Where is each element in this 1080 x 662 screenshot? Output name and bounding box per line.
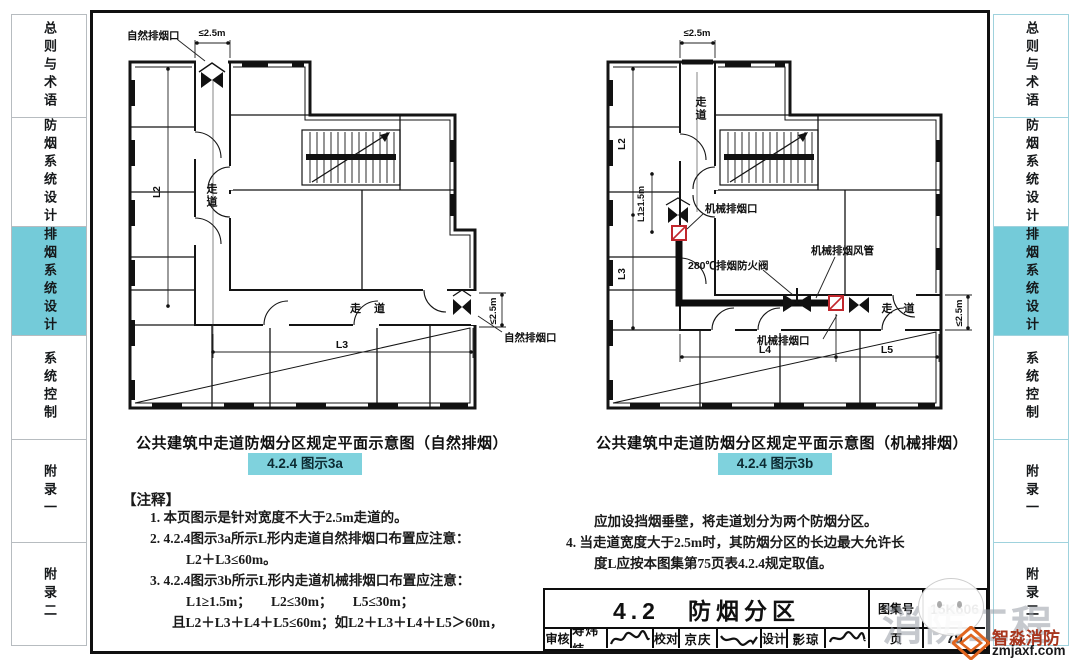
dim-l2-label: L2 bbox=[152, 186, 163, 198]
dim-top-label: ≤2.5m bbox=[199, 28, 226, 39]
mechanical-vent-top-label: 机械排烟口 bbox=[705, 202, 758, 215]
checker-name: 京庆 bbox=[678, 627, 716, 648]
tab-label: 附录二 bbox=[42, 567, 56, 621]
sidebar-left-tab-appendix-1[interactable]: 附录一 bbox=[11, 439, 87, 543]
sidebar-right-tab-smoke-protection-design[interactable]: 防烟系统设计 bbox=[993, 117, 1069, 227]
tab-label: 排烟系统设计 bbox=[1024, 227, 1038, 335]
tab-label: 防烟系统设计 bbox=[1024, 118, 1038, 226]
corridor-label-vertical-a: 走道 bbox=[203, 183, 219, 209]
caption-diagram-b: 公共建筑中走道防烟分区规定平面示意图（机械排烟） bbox=[592, 432, 972, 453]
dim-l1-label: L1≥1.5m bbox=[636, 186, 646, 222]
dim-right-label: ≤2.5m bbox=[954, 300, 965, 327]
tab-label: 附录一 bbox=[1024, 464, 1038, 518]
dim-right-label: ≤2.5m bbox=[488, 298, 499, 325]
designer-signature bbox=[824, 627, 868, 648]
doors bbox=[192, 58, 479, 328]
dim-l5-label: L5 bbox=[881, 344, 893, 356]
fan-symbol-corridor bbox=[849, 297, 869, 313]
checker-signature bbox=[716, 627, 760, 648]
designer-name: 影琼 bbox=[786, 627, 824, 648]
sidebar-left-tab-general-terms[interactable]: 总则与术语 bbox=[11, 14, 87, 118]
tab-label: 附录一 bbox=[42, 464, 56, 518]
figure-badge-3a: 4.2.4 图示3a bbox=[248, 453, 362, 475]
section-title: 4.2 防烟分区 bbox=[545, 590, 868, 627]
note-line: 度L应按本图集第75页表4.2.4规定取值。 bbox=[594, 553, 976, 574]
figure-badge-3b: 4.2.4 图示3b bbox=[718, 453, 832, 475]
dim-l3-label: L3 bbox=[617, 268, 628, 280]
signature-scribble bbox=[609, 630, 651, 648]
tab-label: 总则与术语 bbox=[42, 21, 56, 111]
sidebar-right: 总则与术语 防烟系统设计 排烟系统设计 系统控制 附录一 附录二 bbox=[993, 14, 1069, 646]
sidebar-left-tab-smoke-protection-design[interactable]: 防烟系统设计 bbox=[11, 117, 87, 227]
note-line: 3. 4.2.4图示3b所示L形内走道机械排烟口布置应注意： bbox=[150, 570, 544, 591]
staircase bbox=[302, 130, 400, 185]
reviewer-signature bbox=[606, 627, 652, 648]
reviewer-name: 寿炜炜 bbox=[570, 627, 606, 648]
sidebar-right-tab-smoke-exhaust-design[interactable]: 排烟系统设计 bbox=[993, 226, 1069, 336]
sidebar-left-tab-smoke-exhaust-design[interactable]: 排烟系统设计 bbox=[11, 226, 87, 336]
mechanical-vent-top bbox=[672, 226, 686, 240]
walls bbox=[130, 62, 475, 408]
floor-plan-mechanical-exhaust: ≤2.5m L2 L3 L1≥1.5m L4 L5 ≤2.5m 机械排烟口 28… bbox=[595, 22, 980, 427]
natural-vent-symbol-top bbox=[199, 63, 225, 88]
note-line: L2＋L3≤60m。 bbox=[186, 549, 544, 570]
note-line: 2. 4.2.4图示3a所示L形内走道自然排烟口布置应注意： bbox=[150, 528, 544, 549]
note-line: 且L2＋L3＋L4＋L5≤60m；如L2＋L3＋L4＋L5＞60m， bbox=[172, 612, 544, 633]
sidebar-right-tab-system-control[interactable]: 系统控制 bbox=[993, 335, 1069, 439]
mechanical-vent-mid-label: 机械排烟口 bbox=[757, 334, 810, 347]
fire-damper-valve bbox=[783, 288, 811, 312]
signature-scribble bbox=[719, 630, 759, 648]
fan-symbol-upper bbox=[666, 198, 690, 223]
natural-vent-top-label: 自然排烟口 bbox=[127, 29, 180, 42]
tab-label: 防烟系统设计 bbox=[42, 118, 56, 226]
walls bbox=[608, 62, 941, 408]
room-dividers bbox=[130, 115, 455, 408]
checker-label: 校对 bbox=[652, 627, 678, 648]
sidebar-left: 总则与术语 防烟系统设计 排烟系统设计 系统控制 附录一 附录二 bbox=[11, 14, 87, 646]
note-line: 应加设挡烟垂壁，将走道划分为两个防烟分区。 bbox=[594, 511, 976, 532]
note-line: L1≥1.5m； L2≤30m； L5≤30m； bbox=[186, 591, 544, 612]
sidebar-left-tab-system-control[interactable]: 系统控制 bbox=[11, 335, 87, 439]
brand-site: zmjaxf.com bbox=[992, 643, 1066, 658]
dim-top-label: ≤2.5m bbox=[684, 28, 711, 39]
brand-diamond-icon bbox=[952, 626, 990, 660]
mechanical-vent-mid bbox=[829, 296, 843, 310]
caption-diagram-a: 公共建筑中走道防烟分区规定平面示意图（自然排烟） bbox=[122, 432, 522, 453]
natural-vent-symbol-right bbox=[453, 290, 471, 315]
natural-vent-right-label: 自然排烟口 bbox=[504, 331, 557, 344]
floor-plan-natural-exhaust: ≤2.5m 自然排烟口 L2 L3 ≤2.5m 自然排烟口 走 道 bbox=[122, 22, 570, 427]
sidebar-right-tab-general-terms[interactable]: 总则与术语 bbox=[993, 14, 1069, 118]
designer-label: 设计 bbox=[760, 627, 786, 648]
tab-label: 总则与术语 bbox=[1024, 21, 1038, 111]
tab-label: 排烟系统设计 bbox=[42, 227, 56, 335]
sidebar-right-tab-appendix-1[interactable]: 附录一 bbox=[993, 439, 1069, 543]
notes-left-column: 1. 本页图示是针对宽度不大于2.5m走道的。 2. 4.2.4图示3a所示L形… bbox=[124, 507, 544, 633]
note-line: 1. 本页图示是针对宽度不大于2.5m走道的。 bbox=[150, 507, 544, 528]
notes-right-column: 应加设挡烟垂壁，将走道划分为两个防烟分区。 4. 当走道宽度大于2.5m时，其防… bbox=[566, 511, 976, 574]
dim-l3-label: L3 bbox=[336, 339, 348, 351]
corridor-label-horizontal: 走 道 bbox=[349, 301, 390, 315]
tab-label: 系统控制 bbox=[1024, 351, 1038, 423]
page: 总则与术语 防烟系统设计 排烟系统设计 系统控制 附录一 附录二 总则与术语 防… bbox=[0, 0, 1080, 662]
sidebar-left-tab-appendix-2[interactable]: 附录二 bbox=[11, 542, 87, 646]
tab-label: 系统控制 bbox=[42, 351, 56, 423]
note-line: 4. 当走道宽度大于2.5m时，其防烟分区的长边最大允许长 bbox=[566, 532, 976, 553]
dim-l2-label: L2 bbox=[617, 138, 628, 150]
staircase bbox=[720, 130, 818, 185]
reviewer-label: 审核 bbox=[545, 627, 570, 648]
corridor-label-vertical-b: 走道 bbox=[692, 96, 708, 122]
corridor-label-horizontal: 走 道 bbox=[880, 301, 918, 315]
fire-damper-label: 280℃排烟防火阀 bbox=[688, 259, 769, 272]
signature-scribble bbox=[827, 630, 867, 648]
watermark-brand: 智淼消防 zmjaxf.com bbox=[952, 626, 990, 662]
exhaust-duct-label: 机械排烟风管 bbox=[811, 244, 874, 257]
